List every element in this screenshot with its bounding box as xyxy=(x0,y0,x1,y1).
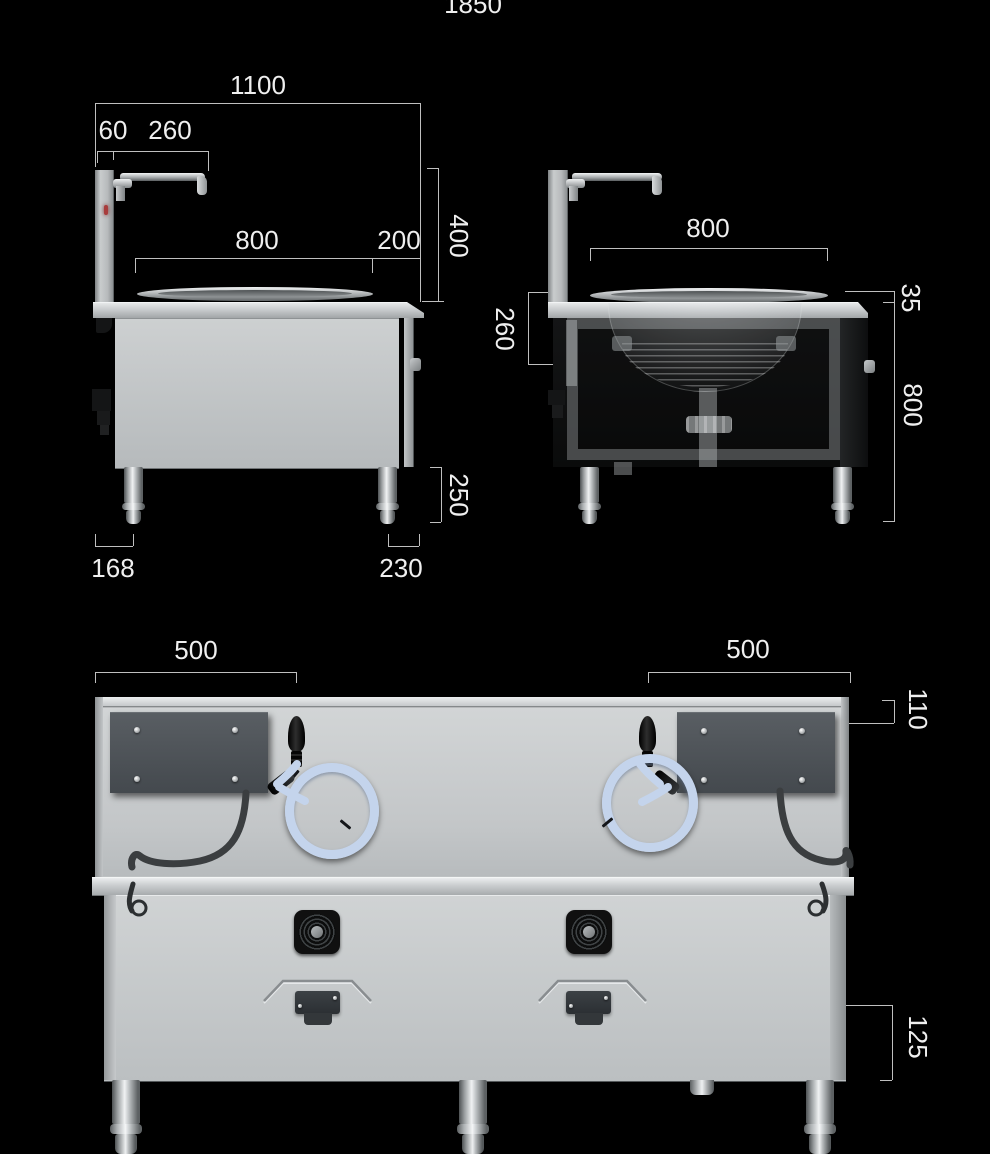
bv-hose-tail-right xyxy=(640,764,660,784)
bv-handle-recess-highlight-left xyxy=(264,983,371,1003)
bv-cable-right xyxy=(780,791,850,865)
bv-cable-ring-left xyxy=(132,901,146,915)
bv-cable-ring-right xyxy=(809,901,823,915)
bv-handle-recess-highlight-right xyxy=(539,983,646,1003)
bv-hose-tail-left xyxy=(277,764,297,784)
bv-cable-left xyxy=(132,793,246,867)
dimension-diagram: 1850 1100 60 260 800 200 400 250 168 230… xyxy=(0,0,990,1154)
bv-hose-tail-left-2 xyxy=(279,787,305,801)
back-view-overlay xyxy=(0,0,990,1154)
bv-hose-tail-right-2 xyxy=(642,787,668,802)
